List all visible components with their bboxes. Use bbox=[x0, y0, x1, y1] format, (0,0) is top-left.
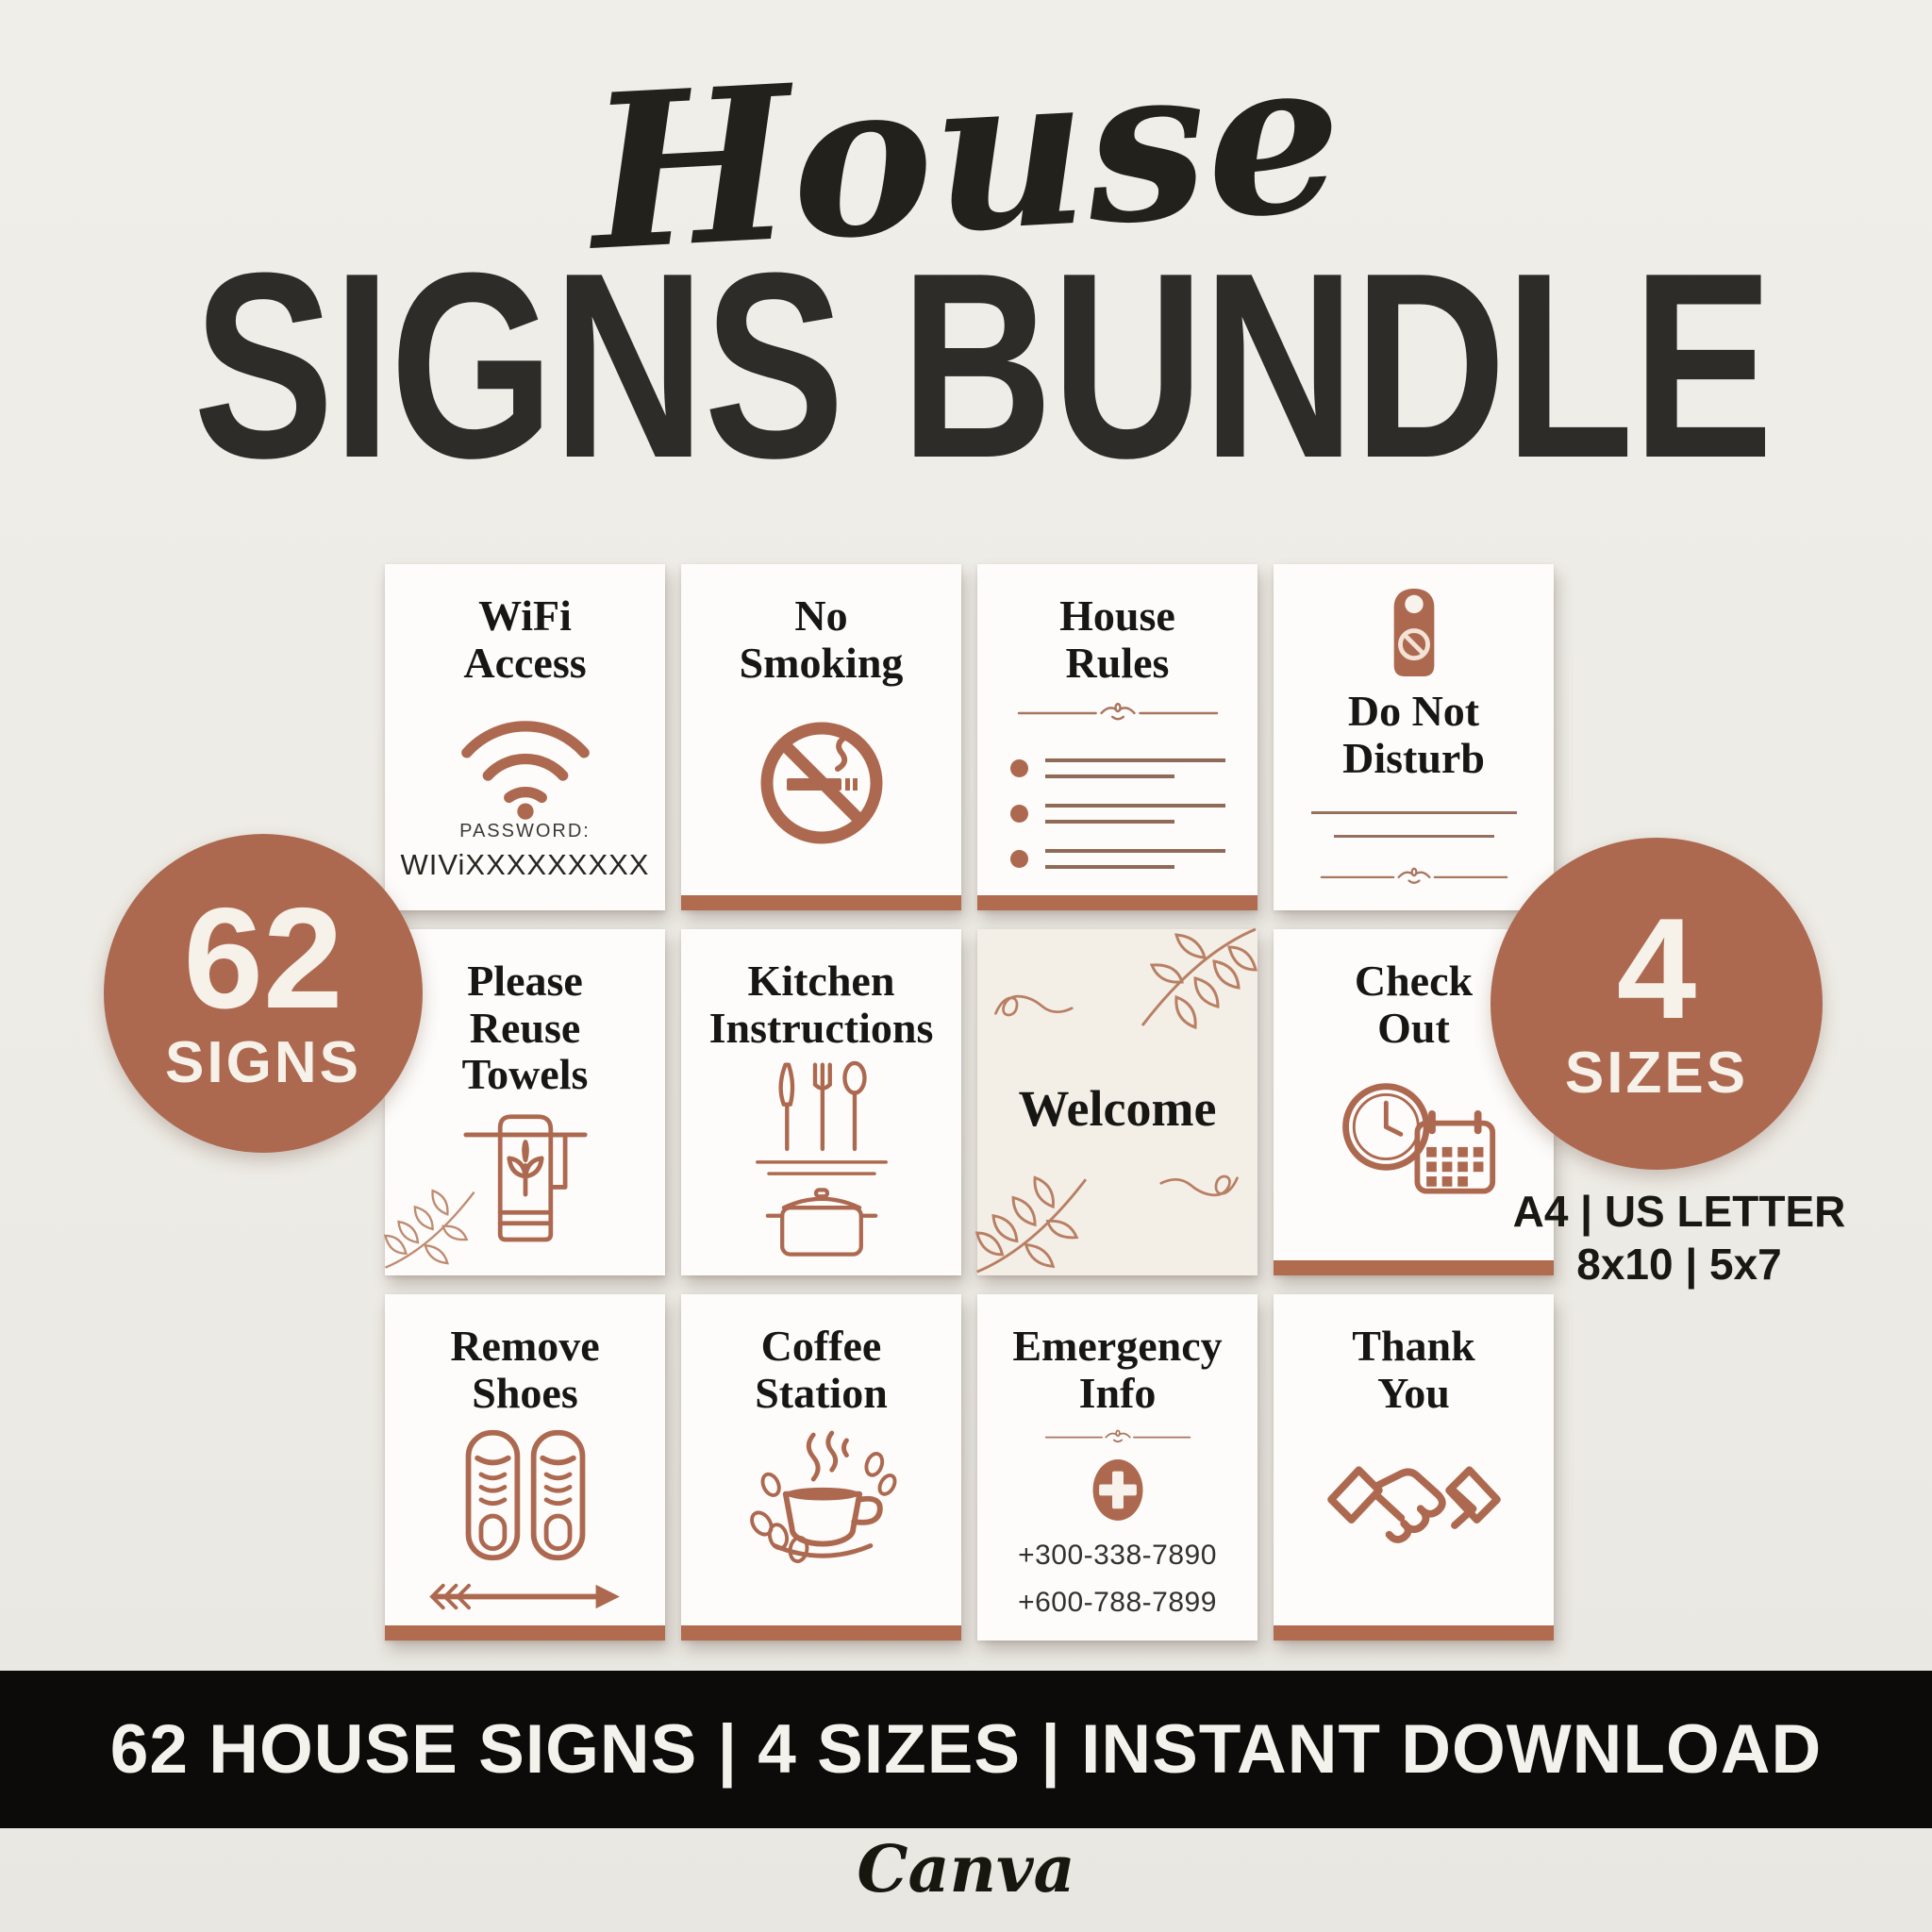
flourish-divider-icon bbox=[1019, 1427, 1217, 1446]
clock-calendar-icon bbox=[1329, 1075, 1499, 1213]
emergency-phone-2: +600-788-7899 bbox=[1018, 1579, 1217, 1626]
sizes-line-1: A4 | US LETTER bbox=[1476, 1185, 1882, 1238]
sign-card-emergency-info: Emergency Info +300-338-7890 bbox=[977, 1294, 1257, 1641]
sign-card-wifi-access: WiFi Access PASSWORD: WIViXXXXXXXXX bbox=[385, 564, 665, 910]
bullet-dot-icon bbox=[1010, 805, 1028, 823]
coffee-cup-icon bbox=[734, 1427, 909, 1575]
sign-title: WiFi Access bbox=[463, 592, 586, 686]
flourish-divider-icon bbox=[1320, 864, 1508, 889]
card-accent-bar bbox=[681, 1625, 961, 1641]
sign-title: Welcome bbox=[1019, 1081, 1217, 1136]
sign-title: Please Reuse Towels bbox=[462, 958, 589, 1098]
sign-grid: WiFi Access PASSWORD: WIViXXXXXXXXX No S… bbox=[385, 564, 1554, 1641]
main-title: SIGNS BUNDLE bbox=[193, 234, 1739, 498]
rules-bullet-list bbox=[1010, 733, 1225, 869]
sizes-line-2: 8x10 | 5x7 bbox=[1476, 1238, 1882, 1291]
signs-count-number: 62 bbox=[183, 891, 342, 1026]
sizes-count-number: 4 bbox=[1617, 901, 1697, 1037]
rules-bullet-item bbox=[1010, 849, 1225, 869]
footer-banner-text: 62 HOUSE SIGNS | 4 SIZES | INSTANT DOWNL… bbox=[110, 1710, 1822, 1789]
sizes-count-label: SIZES bbox=[1565, 1040, 1748, 1107]
sizes-count-badge: 4 SIZES bbox=[1491, 838, 1823, 1170]
sign-card-kitchen-instructions: Kitchen Instructions bbox=[681, 929, 961, 1275]
sign-title: No Smoking bbox=[740, 592, 904, 686]
available-sizes-note: A4 | US LETTER 8x10 | 5x7 bbox=[1476, 1185, 1882, 1291]
sign-card-reuse-towels: Please Reuse Towels bbox=[385, 929, 665, 1275]
medical-cross-icon bbox=[1081, 1457, 1155, 1523]
sign-title: Emergency Info bbox=[1012, 1323, 1222, 1416]
sneakers-icon bbox=[458, 1427, 593, 1563]
door-hanger-icon bbox=[1383, 587, 1445, 678]
handshake-icon bbox=[1322, 1442, 1507, 1562]
sign-card-house-rules: House Rules bbox=[977, 564, 1257, 910]
placeholder-lines bbox=[1311, 811, 1517, 838]
sign-title: Remove Shoes bbox=[450, 1323, 599, 1416]
product-poster: House SIGNS BUNDLE WiFi Access PASSWORD:… bbox=[0, 0, 1932, 1932]
flourish-divider-icon bbox=[1017, 699, 1219, 725]
squiggle-icon bbox=[1139, 1164, 1242, 1207]
rules-bullet-item bbox=[1010, 758, 1225, 778]
sign-card-welcome: Welcome bbox=[977, 929, 1257, 1275]
sign-title: Check Out bbox=[1355, 958, 1473, 1051]
sign-title: Do Not Disturb bbox=[1342, 688, 1485, 781]
footer-banner: 62 HOUSE SIGNS | 4 SIZES | INSTANT DOWNL… bbox=[0, 1671, 1932, 1828]
card-accent-bar bbox=[385, 1625, 665, 1641]
wifi-password-label: PASSWORD: bbox=[401, 821, 650, 842]
card-accent-bar bbox=[681, 895, 961, 910]
wifi-icon bbox=[444, 710, 607, 821]
sign-title: House Rules bbox=[1059, 592, 1175, 686]
sign-card-coffee-station: Coffee Station bbox=[681, 1294, 961, 1641]
sign-title: Thank You bbox=[1352, 1323, 1474, 1416]
cutlery-icon bbox=[736, 1057, 908, 1180]
wifi-password-block: PASSWORD: WIViXXXXXXXXX bbox=[401, 821, 650, 882]
signs-count-badge: 62 SIGNS bbox=[104, 834, 423, 1153]
arrow-right-icon bbox=[428, 1578, 622, 1615]
emergency-phone-numbers: +300-338-7890 +600-788-7899 bbox=[1018, 1532, 1217, 1625]
sign-card-do-not-disturb: Do Not Disturb bbox=[1274, 564, 1554, 910]
no-smoking-icon bbox=[751, 712, 892, 854]
card-accent-bar bbox=[977, 895, 1257, 910]
leaf-branch-icon bbox=[379, 1177, 491, 1274]
emergency-phone-1: +300-338-7890 bbox=[1018, 1532, 1217, 1579]
sign-card-no-smoking: No Smoking bbox=[681, 564, 961, 910]
bullet-dot-icon bbox=[1010, 850, 1028, 868]
wifi-password-value: WIViXXXXXXXXX bbox=[401, 848, 650, 882]
canva-logo: Canva bbox=[0, 1832, 1932, 1907]
bullet-dot-icon bbox=[1010, 759, 1028, 777]
sign-title: Coffee Station bbox=[755, 1323, 888, 1416]
leaf-branch-icon bbox=[1122, 922, 1263, 1044]
sign-card-remove-shoes: Remove Shoes bbox=[385, 1294, 665, 1641]
signs-count-label: SIGNS bbox=[165, 1029, 361, 1096]
leaf-branch-icon bbox=[970, 1161, 1106, 1279]
cooking-pot-icon bbox=[758, 1187, 885, 1261]
sign-title: Kitchen Instructions bbox=[709, 958, 934, 1051]
card-accent-bar bbox=[1274, 1625, 1554, 1641]
sign-card-thank-you: Thank You bbox=[1274, 1294, 1554, 1641]
squiggle-icon bbox=[991, 984, 1094, 1027]
rules-bullet-item bbox=[1010, 804, 1225, 824]
